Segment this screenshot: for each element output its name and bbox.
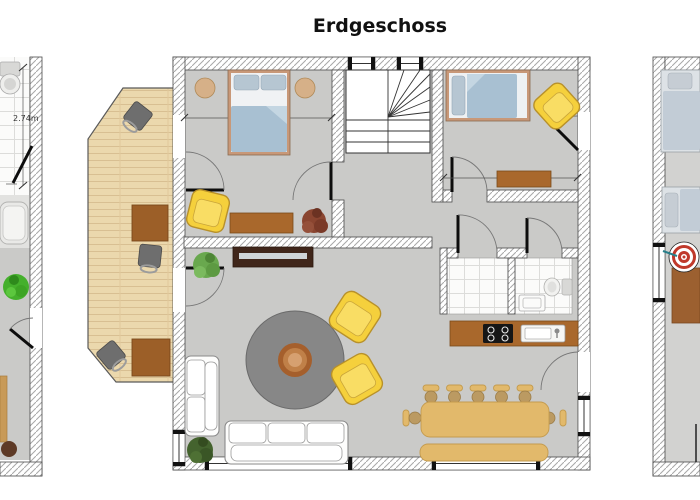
cooktop (483, 324, 513, 343)
tv-sideboard (233, 247, 313, 267)
wall-bath-top-c (562, 248, 578, 258)
right-unit-wall-bottom (653, 462, 700, 476)
yellow-armchair (185, 188, 231, 234)
stool (1, 441, 17, 457)
dresser (497, 171, 551, 187)
plant (187, 437, 213, 463)
wall-bath-top-b (497, 248, 527, 258)
floor-plan-drawing: Erdgeschoss (0, 0, 700, 500)
round-coffee-table (278, 343, 312, 377)
window (348, 57, 375, 70)
bathtub (0, 202, 28, 244)
wall-stair-divider (432, 70, 443, 202)
plant (3, 274, 29, 300)
washbasin (519, 295, 545, 311)
table (672, 268, 700, 323)
window (397, 57, 423, 70)
left-partial-unit: 2.74m (0, 57, 42, 476)
outdoor-table (132, 205, 168, 241)
outdoor-table (132, 339, 170, 376)
three-seat-sofa (225, 421, 348, 464)
wall-bath-left (440, 248, 447, 314)
wall-bedroom1-bottom (184, 237, 432, 248)
window (578, 396, 590, 436)
double-bed (228, 70, 290, 155)
right-unit-wall-top (665, 57, 700, 70)
nightstand (295, 78, 315, 98)
bed (662, 187, 700, 233)
window (173, 430, 185, 466)
terrace (88, 88, 174, 382)
wall-top (173, 57, 590, 70)
wall-bath-divider (508, 258, 515, 314)
toilet (544, 278, 572, 296)
left-unit-wall-bottom (0, 462, 42, 476)
wood-sideboard (0, 376, 7, 442)
two-seat-sofa (185, 356, 219, 436)
staircase (346, 70, 430, 153)
desk (230, 213, 293, 233)
bathroom-1-floor (447, 258, 508, 314)
dimension-label: 2.74m (13, 114, 39, 123)
dining-table (421, 402, 549, 437)
page-title: Erdgeschoss (313, 15, 447, 37)
single-bed (446, 70, 530, 121)
wall-bedroom2-bottom-b (487, 190, 578, 202)
toilet (0, 62, 20, 94)
kitchen-sink (521, 325, 565, 342)
right-partial-unit (653, 57, 700, 476)
wall-bedroom1-right-a (332, 70, 344, 162)
nightstand (195, 78, 215, 98)
kitchen (450, 321, 578, 346)
bench (420, 444, 548, 461)
bed (661, 70, 700, 152)
main-unit (173, 57, 590, 470)
floor-plan-page: Erdgeschoss (0, 0, 700, 500)
wall-bedroom1-right-b (332, 200, 344, 240)
